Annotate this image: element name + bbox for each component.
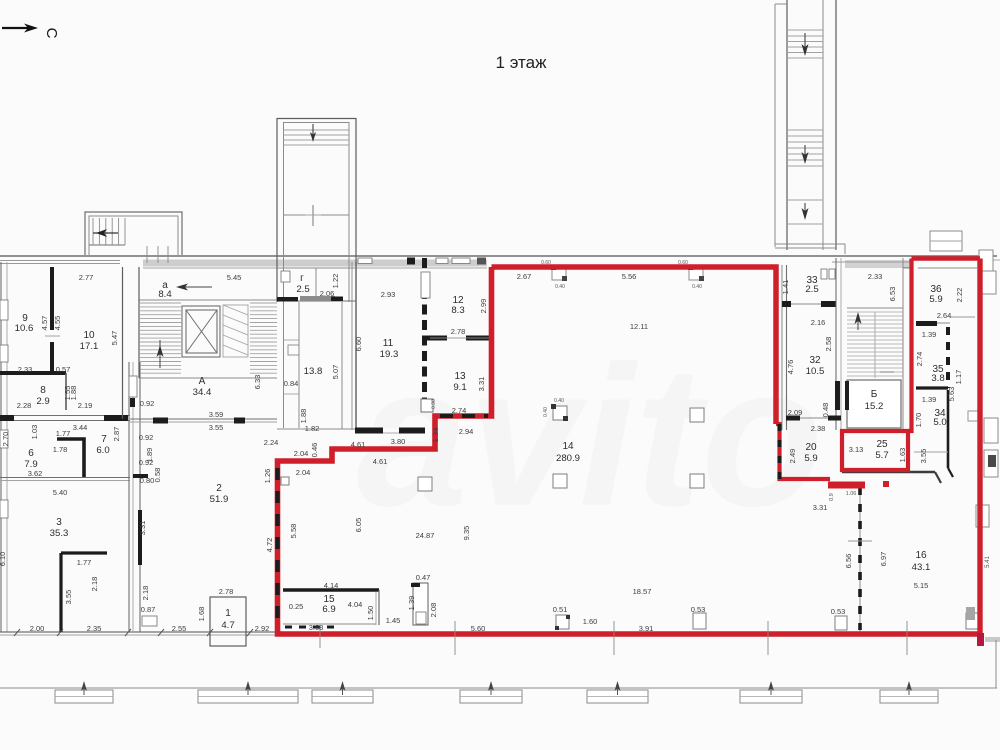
svg-text:2.18: 2.18 xyxy=(90,577,99,592)
svg-text:6.56: 6.56 xyxy=(844,554,853,569)
svg-text:8.3: 8.3 xyxy=(451,305,464,316)
svg-text:1.70: 1.70 xyxy=(914,413,923,428)
svg-text:0.92: 0.92 xyxy=(140,399,155,408)
svg-text:0.90: 0.90 xyxy=(431,399,437,409)
svg-text:18.57: 18.57 xyxy=(633,587,652,596)
svg-text:2.74: 2.74 xyxy=(452,406,467,415)
svg-text:5.15: 5.15 xyxy=(914,581,929,590)
svg-text:3.31: 3.31 xyxy=(138,521,147,536)
svg-text:3.62: 3.62 xyxy=(28,469,43,478)
svg-text:1: 1 xyxy=(225,608,231,619)
svg-text:1.78: 1.78 xyxy=(53,445,68,454)
svg-text:1.03: 1.03 xyxy=(30,425,39,440)
svg-text:2.08: 2.08 xyxy=(429,603,438,618)
svg-text:5.07: 5.07 xyxy=(331,365,340,380)
svg-text:1.45: 1.45 xyxy=(386,616,401,625)
svg-text:2.74: 2.74 xyxy=(915,352,924,367)
svg-text:3.13: 3.13 xyxy=(849,445,864,454)
svg-text:2.19: 2.19 xyxy=(78,401,93,410)
svg-text:2.93: 2.93 xyxy=(381,290,396,299)
svg-text:9.35: 9.35 xyxy=(462,526,471,541)
svg-text:19.3: 19.3 xyxy=(380,349,399,360)
svg-text:5.58: 5.58 xyxy=(289,524,298,539)
svg-text:5.7: 5.7 xyxy=(875,450,888,461)
svg-text:0.46: 0.46 xyxy=(310,443,319,458)
svg-text:3.55: 3.55 xyxy=(64,590,73,605)
svg-text:0.51: 0.51 xyxy=(553,605,568,614)
svg-text:6.97: 6.97 xyxy=(879,552,888,567)
svg-text:2.55: 2.55 xyxy=(172,624,187,633)
svg-text:35.3: 35.3 xyxy=(50,528,69,539)
svg-text:1.39: 1.39 xyxy=(922,395,937,404)
svg-text:10: 10 xyxy=(83,330,95,341)
svg-text:3: 3 xyxy=(56,517,62,528)
svg-text:11: 11 xyxy=(383,338,394,349)
svg-text:14: 14 xyxy=(562,441,574,452)
svg-text:0.25: 0.25 xyxy=(289,602,304,611)
svg-text:1.17: 1.17 xyxy=(954,370,963,385)
svg-text:1 этаж: 1 этаж xyxy=(496,53,548,72)
svg-text:1.88: 1.88 xyxy=(69,386,78,401)
svg-text:0.53: 0.53 xyxy=(831,607,846,616)
svg-text:13: 13 xyxy=(454,371,466,382)
svg-text:2.78: 2.78 xyxy=(451,327,466,336)
svg-text:4.7: 4.7 xyxy=(221,620,234,631)
svg-text:0.57: 0.57 xyxy=(56,365,71,374)
svg-text:4.61: 4.61 xyxy=(351,440,366,449)
svg-text:4.61: 4.61 xyxy=(373,457,388,466)
svg-text:0.40: 0.40 xyxy=(554,398,564,404)
svg-text:А: А xyxy=(199,376,206,387)
svg-text:1.22: 1.22 xyxy=(331,274,340,289)
svg-text:2.87: 2.87 xyxy=(112,427,121,442)
svg-text:5.56: 5.56 xyxy=(622,272,637,281)
svg-text:280.9: 280.9 xyxy=(556,453,580,464)
svg-text:1.82: 1.82 xyxy=(305,424,320,433)
svg-text:3.68: 3.68 xyxy=(309,623,324,632)
svg-text:2.5: 2.5 xyxy=(296,284,309,295)
svg-text:1.77: 1.77 xyxy=(77,558,92,567)
svg-text:6.0: 6.0 xyxy=(96,445,109,456)
svg-text:32: 32 xyxy=(809,355,821,366)
svg-text:0.84: 0.84 xyxy=(284,379,299,388)
svg-text:1.63: 1.63 xyxy=(898,448,907,463)
svg-text:2.94: 2.94 xyxy=(459,427,474,436)
svg-text:3.31: 3.31 xyxy=(477,377,486,392)
svg-text:1.41: 1.41 xyxy=(781,280,790,295)
svg-text:6.05: 6.05 xyxy=(354,518,363,533)
svg-text:3.8: 3.8 xyxy=(931,373,944,384)
svg-text:1.39: 1.39 xyxy=(922,330,937,339)
svg-text:4.57: 4.57 xyxy=(40,316,49,331)
svg-text:5.9: 5.9 xyxy=(929,294,942,305)
svg-text:7: 7 xyxy=(101,434,107,445)
svg-text:1.34: 1.34 xyxy=(431,428,440,443)
svg-text:2.99: 2.99 xyxy=(479,299,488,314)
svg-text:2.33: 2.33 xyxy=(18,365,33,374)
svg-text:13.8: 13.8 xyxy=(304,366,323,377)
svg-text:20: 20 xyxy=(805,442,817,453)
svg-text:15.2: 15.2 xyxy=(865,401,884,412)
svg-text:1.50: 1.50 xyxy=(366,606,375,621)
svg-text:0.47: 0.47 xyxy=(416,573,431,582)
svg-text:51.9: 51.9 xyxy=(210,494,229,505)
svg-text:Б: Б xyxy=(871,389,878,400)
svg-text:5.9: 5.9 xyxy=(804,453,817,464)
svg-text:5.41: 5.41 xyxy=(985,556,991,568)
svg-text:1.77: 1.77 xyxy=(56,429,71,438)
svg-text:2.64: 2.64 xyxy=(937,311,952,320)
svg-text:25: 25 xyxy=(876,439,888,450)
svg-text:3.91: 3.91 xyxy=(639,624,654,633)
svg-text:2.04: 2.04 xyxy=(294,449,309,458)
svg-text:2.78: 2.78 xyxy=(219,587,234,596)
svg-text:4.55: 4.55 xyxy=(53,316,62,331)
svg-text:2.24: 2.24 xyxy=(264,438,279,447)
svg-text:6: 6 xyxy=(28,448,34,459)
svg-text:34.4: 34.4 xyxy=(193,387,212,398)
svg-text:2.09: 2.09 xyxy=(788,408,803,417)
svg-text:С: С xyxy=(43,28,60,39)
svg-text:1.39: 1.39 xyxy=(407,596,416,611)
svg-text:9.1: 9.1 xyxy=(453,382,466,393)
svg-text:2.70: 2.70 xyxy=(1,432,10,447)
svg-text:4.04: 4.04 xyxy=(348,600,363,609)
svg-text:2.22: 2.22 xyxy=(955,288,964,303)
svg-text:8.4: 8.4 xyxy=(158,289,172,300)
svg-text:0.92: 0.92 xyxy=(139,458,154,467)
svg-text:12.11: 12.11 xyxy=(630,322,648,331)
svg-text:5.63: 5.63 xyxy=(947,387,956,402)
svg-text:2.38: 2.38 xyxy=(811,424,826,433)
svg-text:1.88: 1.88 xyxy=(299,409,308,424)
svg-text:0.53: 0.53 xyxy=(691,605,706,614)
svg-text:2.49: 2.49 xyxy=(788,449,797,464)
svg-text:2.04: 2.04 xyxy=(296,468,311,477)
svg-text:1.68: 1.68 xyxy=(197,607,206,622)
svg-text:0.92: 0.92 xyxy=(139,433,154,442)
svg-text:3.44: 3.44 xyxy=(73,423,88,432)
svg-text:4.72: 4.72 xyxy=(265,538,274,553)
svg-text:8: 8 xyxy=(40,385,46,396)
svg-text:3.55: 3.55 xyxy=(919,449,928,464)
svg-text:2: 2 xyxy=(216,483,222,494)
svg-text:5.40: 5.40 xyxy=(53,488,68,497)
svg-text:6.10: 6.10 xyxy=(0,552,7,567)
svg-text:2.33: 2.33 xyxy=(868,272,883,281)
svg-text:2.58: 2.58 xyxy=(824,337,833,352)
svg-text:6.53: 6.53 xyxy=(888,287,897,302)
svg-text:2.77: 2.77 xyxy=(79,273,94,282)
svg-text:6.60: 6.60 xyxy=(354,337,363,352)
svg-text:2.92: 2.92 xyxy=(255,624,270,633)
svg-text:0.80: 0.80 xyxy=(140,476,155,485)
svg-text:4.76: 4.76 xyxy=(786,360,795,375)
svg-text:0.48: 0.48 xyxy=(821,403,830,418)
svg-text:10.6: 10.6 xyxy=(15,323,34,334)
svg-text:0.40: 0.40 xyxy=(543,407,549,417)
svg-text:5.47: 5.47 xyxy=(110,331,119,346)
svg-text:0.87: 0.87 xyxy=(141,605,156,614)
svg-text:3.80: 3.80 xyxy=(391,437,406,446)
svg-text:2.00: 2.00 xyxy=(30,624,45,633)
svg-text:0.40: 0.40 xyxy=(555,284,565,290)
svg-text:1.06: 1.06 xyxy=(846,491,857,497)
svg-text:г: г xyxy=(300,273,304,284)
svg-text:17.1: 17.1 xyxy=(80,341,99,352)
svg-text:0.58: 0.58 xyxy=(153,468,162,483)
svg-text:2.28: 2.28 xyxy=(17,401,32,410)
svg-text:3.31: 3.31 xyxy=(813,503,828,512)
svg-text:0.9: 0.9 xyxy=(829,493,835,501)
svg-text:43.1: 43.1 xyxy=(912,562,931,573)
svg-text:2.35: 2.35 xyxy=(87,624,102,633)
svg-text:2.67: 2.67 xyxy=(517,272,532,281)
svg-text:2.9: 2.9 xyxy=(36,396,49,407)
svg-text:1.60: 1.60 xyxy=(583,617,598,626)
svg-text:2.5: 2.5 xyxy=(805,284,818,295)
svg-text:3.59: 3.59 xyxy=(209,410,224,419)
svg-text:2.16: 2.16 xyxy=(811,318,826,327)
svg-text:24.87: 24.87 xyxy=(416,531,435,540)
svg-text:2.06: 2.06 xyxy=(320,289,335,298)
svg-text:4.14: 4.14 xyxy=(324,581,339,590)
svg-text:5.60: 5.60 xyxy=(471,624,486,633)
svg-text:2.18: 2.18 xyxy=(141,586,150,601)
svg-text:1.26: 1.26 xyxy=(263,469,272,484)
svg-text:3.55: 3.55 xyxy=(209,423,224,432)
svg-text:6.33: 6.33 xyxy=(253,375,262,390)
svg-text:16: 16 xyxy=(915,550,927,561)
svg-text:5.0: 5.0 xyxy=(933,417,946,428)
svg-text:5.45: 5.45 xyxy=(227,273,242,282)
svg-text:6.9: 6.9 xyxy=(322,604,335,615)
svg-text:0.40: 0.40 xyxy=(692,284,702,290)
svg-text:10.5: 10.5 xyxy=(806,366,825,377)
